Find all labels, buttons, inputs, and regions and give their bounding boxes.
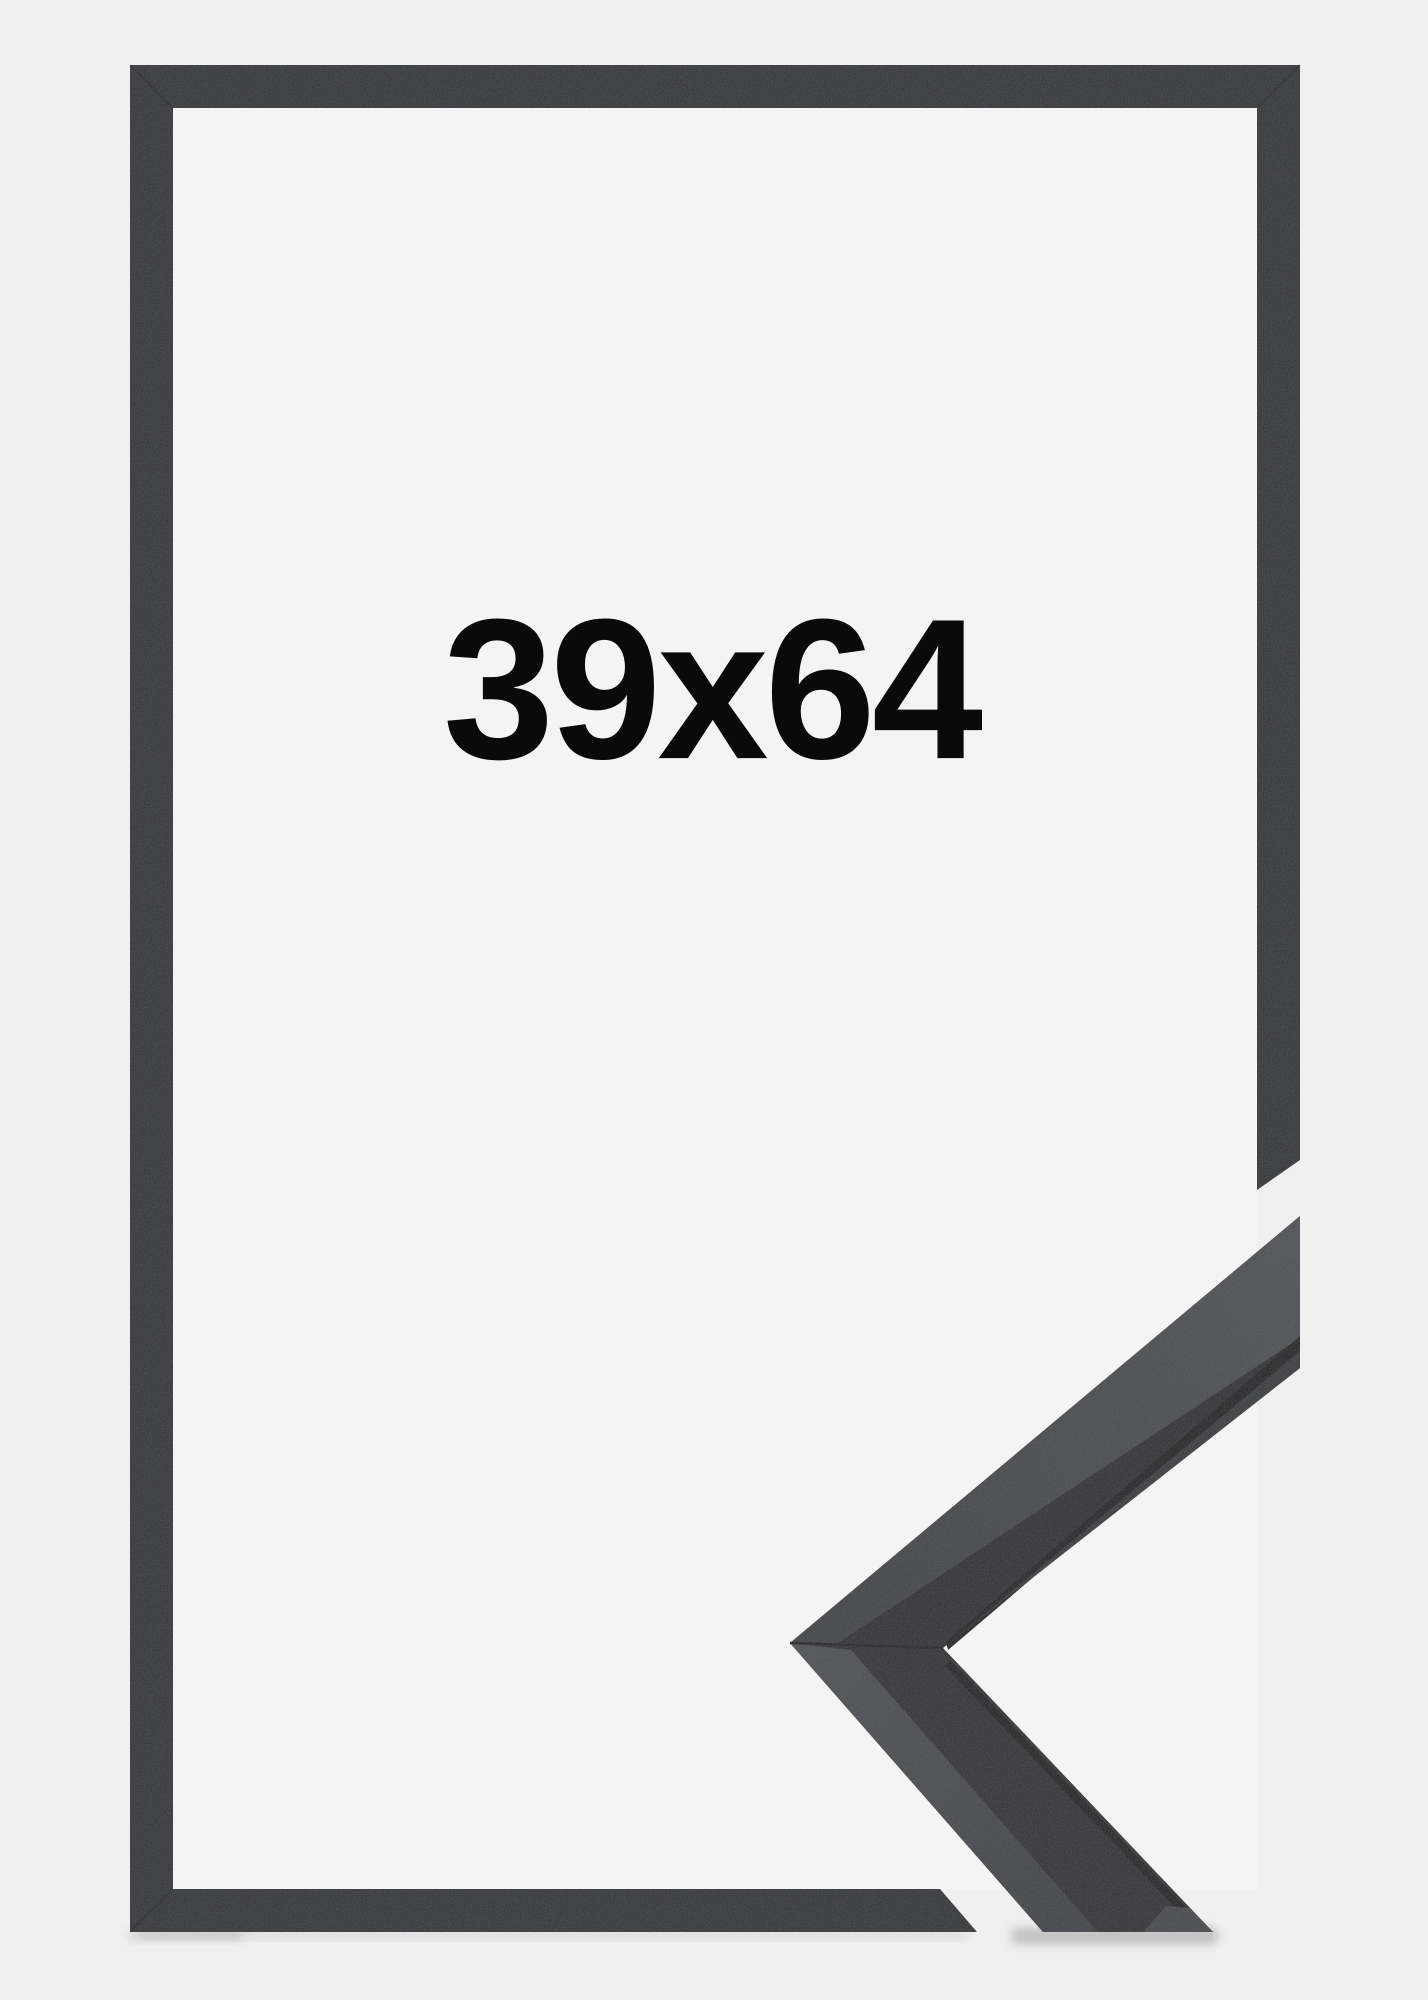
- frame-border-left: [130, 65, 173, 1932]
- frame-border-bottom: [130, 1889, 977, 1932]
- frame-border-top: [130, 65, 1300, 108]
- size-label: 39x64: [443, 575, 979, 805]
- frame-scene: [0, 0, 1428, 2000]
- frame-inner-area: [173, 108, 1257, 1889]
- frame-product-image: 39x64: [0, 0, 1428, 2000]
- frame-border-right: [1257, 65, 1300, 1190]
